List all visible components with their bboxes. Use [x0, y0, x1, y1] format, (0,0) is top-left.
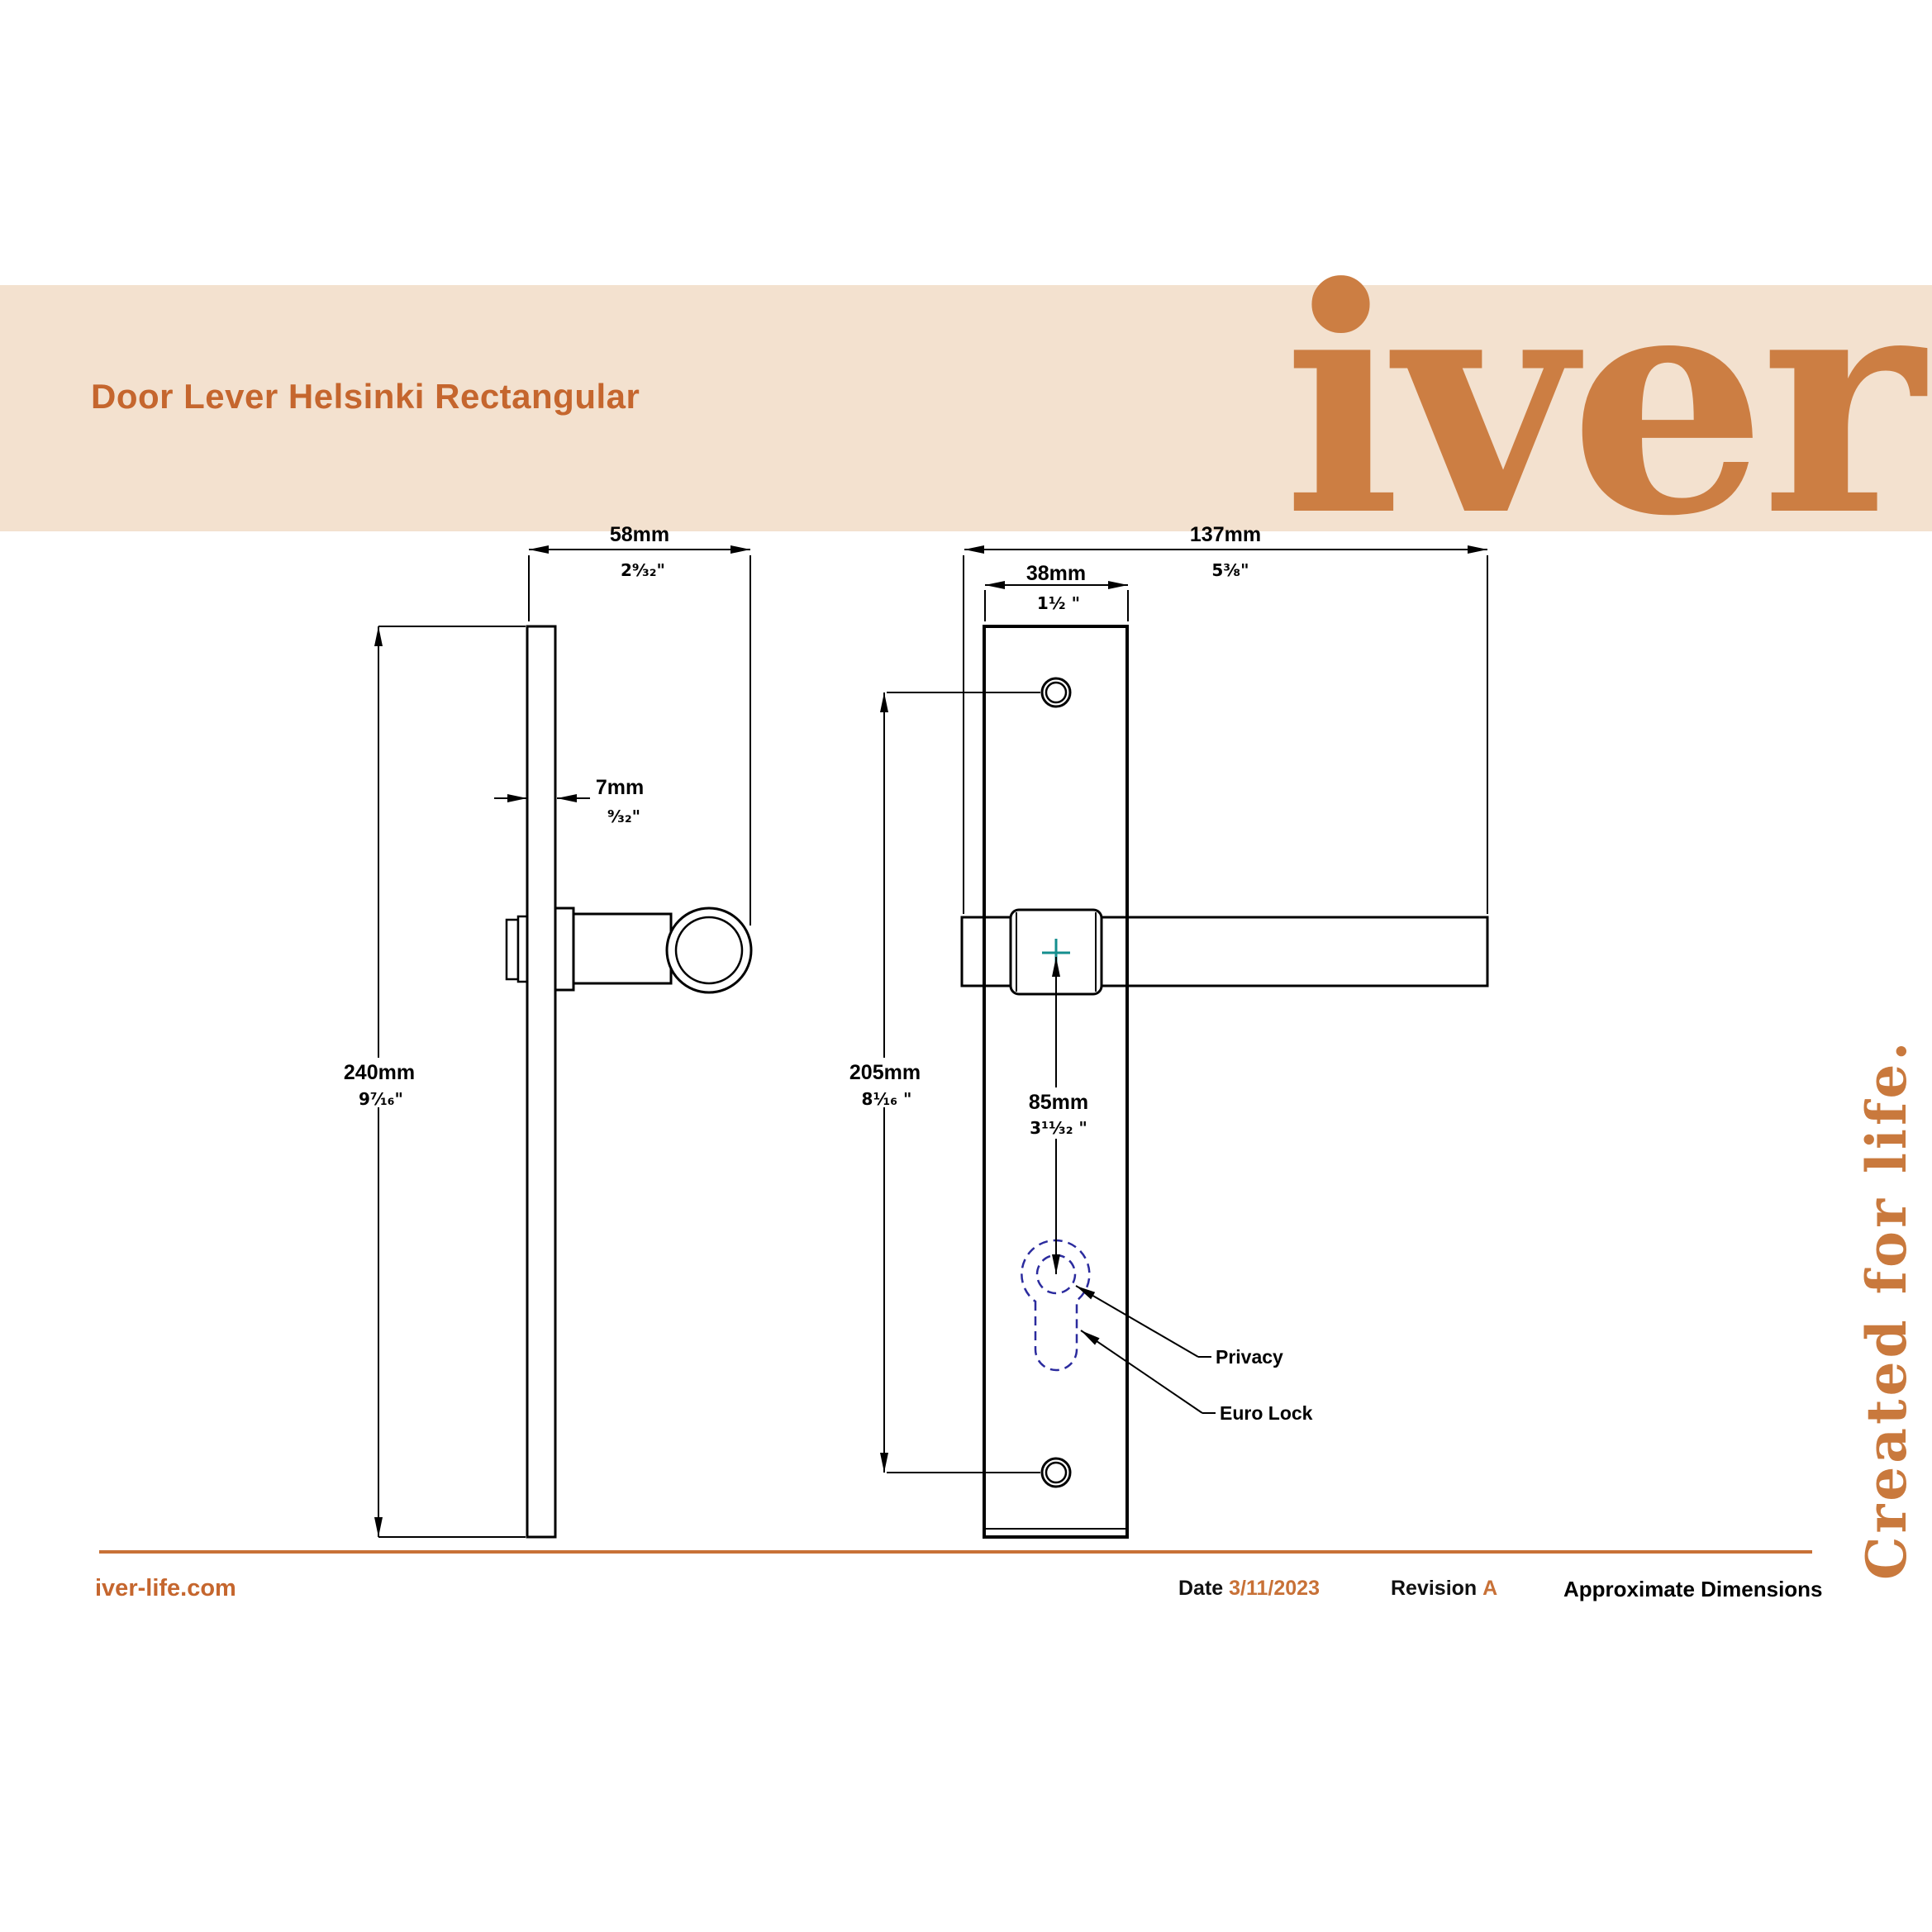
dim-38mm-inch: 1¹⁄₂ " [1037, 593, 1080, 613]
side-plate [527, 626, 555, 1537]
dim-85mm-inch: 3¹¹⁄₃₂ " [1030, 1118, 1087, 1138]
side-view-dimensions [378, 550, 750, 1537]
footer-rule [99, 1550, 1812, 1554]
date-value: 3/11/2023 [1229, 1577, 1320, 1600]
revision-field: Revision A [1391, 1577, 1497, 1601]
dim-85mm: 85mm [1029, 1091, 1088, 1114]
dim-240mm-inch: 9⁷⁄₁₆" [359, 1089, 403, 1109]
dim-7mm: 7mm [596, 776, 644, 799]
front-view [962, 626, 1487, 1537]
dim-58mm: 58mm [610, 523, 669, 546]
dim-205mm-inch: 8¹⁄₁₆ " [862, 1089, 912, 1109]
side-view [507, 626, 751, 1537]
date-field: Date 3/11/2023 [1178, 1577, 1320, 1601]
technical-drawing: 58mm 2⁹⁄₃₂" 7mm ⁹⁄₃₂" 240mm 9⁷⁄₁₆" [0, 0, 1932, 1932]
tagline: Created for life. [1854, 1039, 1919, 1580]
callout-euro-lock: Euro Lock [1220, 1402, 1313, 1424]
dim-137mm-inch: 5³⁄₈" [1211, 560, 1249, 580]
dim-58mm-inch: 2⁹⁄₃₂" [621, 560, 665, 580]
website-link[interactable]: iver-life.com [95, 1575, 236, 1602]
revision-label: Revision [1391, 1577, 1477, 1600]
dim-137mm: 137mm [1190, 523, 1261, 546]
dim-205mm: 205mm [849, 1061, 921, 1084]
dim-38mm: 38mm [1026, 562, 1086, 585]
front-view-dimensions [884, 550, 1487, 1473]
dim-7mm-inch: ⁹⁄₃₂" [607, 807, 640, 826]
dim-240mm: 240mm [344, 1061, 415, 1084]
date-label: Date [1178, 1577, 1223, 1600]
dimensions-note: Approximate Dimensions [1563, 1577, 1823, 1602]
revision-value: A [1482, 1577, 1497, 1600]
spec-sheet: Door Lever Helsinki Rectangular iver [0, 0, 1932, 1932]
callout-privacy: Privacy [1216, 1346, 1283, 1368]
lever-end-circle [667, 908, 751, 992]
